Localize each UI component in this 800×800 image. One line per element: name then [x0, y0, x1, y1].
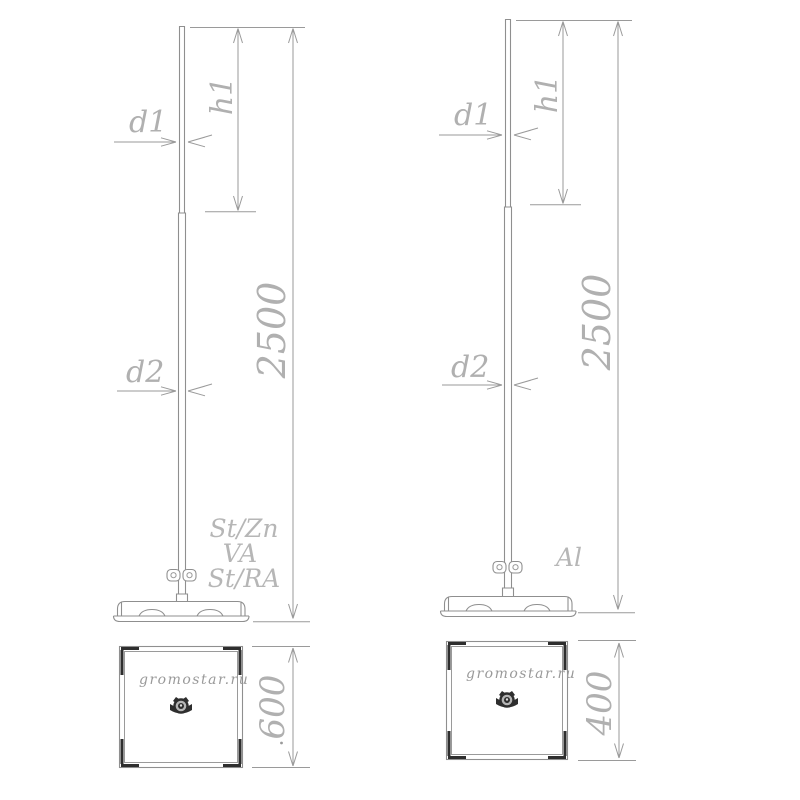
- right-dim-d1: d1: [439, 98, 538, 140]
- right-dim-d1-label: d1: [454, 98, 492, 133]
- right-dim-400-label: 400: [580, 671, 620, 737]
- right-dim-d2: d2: [442, 350, 538, 390]
- left-dim-d2: d2: [117, 355, 212, 396]
- left-material-3: St/RA: [208, 564, 280, 593]
- right-clamp-plate-left: [493, 562, 506, 574]
- left-mast: [177, 27, 188, 602]
- drawing-svg: d1 h1 2500 d2 St/Zn VA St/RA: [0, 0, 800, 800]
- right-dim-2500-label: 2500: [575, 274, 619, 372]
- left-dim-d1-label: d1: [129, 105, 167, 140]
- right-material-1: Al: [554, 543, 582, 572]
- left-dim-2500-label: 2500: [250, 282, 294, 380]
- left-material-labels: St/Zn VA St/RA: [208, 514, 280, 593]
- right-material-labels: Al: [554, 543, 582, 572]
- left-dim-h1: h1: [205, 29, 256, 212]
- right-dim-total-height: 2500: [575, 22, 635, 613]
- left-clamp-plate-right: [183, 570, 196, 582]
- right-dim-h1: h1: [530, 22, 581, 205]
- left-dim-d2-label: d2: [126, 355, 164, 390]
- left-watermark: gromostar.ru: [139, 672, 249, 688]
- left-dim-stray-dot: [280, 742, 283, 745]
- left-dim-base-size: 600: [252, 647, 310, 768]
- left-base-plate: [114, 602, 250, 622]
- left-dim-d1: d1: [114, 105, 212, 147]
- technical-drawing-canvas: d1 h1 2500 d2 St/Zn VA St/RA: [0, 0, 800, 800]
- left-dim-h1-arrows: [205, 29, 256, 212]
- right-elevation-view: d1 h1 2500 d2 Al: [439, 20, 635, 617]
- right-dim-h1-label: h1: [530, 75, 565, 113]
- right-mast: [503, 20, 514, 597]
- right-dim-base-size: 400: [578, 641, 636, 761]
- left-socket-highlight: [180, 704, 182, 706]
- right-base-plate: [441, 597, 577, 617]
- right-socket-highlight: [506, 698, 508, 700]
- left-clamp-plate-left: [167, 570, 180, 582]
- right-dim-d2-label: d2: [451, 350, 489, 385]
- right-watermark: gromostar.ru: [466, 666, 576, 682]
- left-dim-h1-label: h1: [205, 77, 240, 115]
- right-plan-view: gromostar.ru 400: [447, 641, 637, 761]
- left-elevation-view: d1 h1 2500 d2 St/Zn VA St/RA: [114, 27, 311, 622]
- left-dim-600-label: 600: [253, 675, 293, 740]
- left-plan-view: gromostar.ru 600: [120, 647, 311, 768]
- right-clamp-plate-right: [509, 562, 522, 574]
